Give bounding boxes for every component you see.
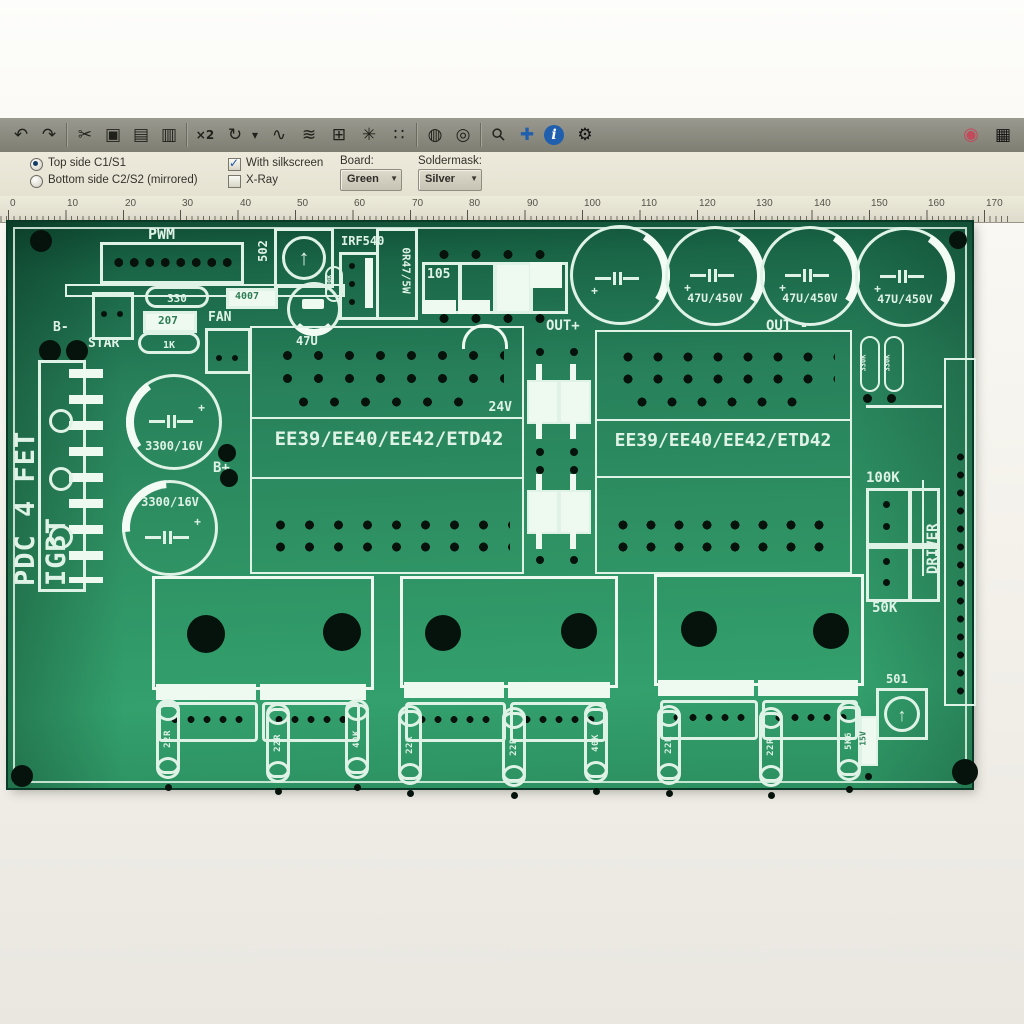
radio-top-side-label: Top side C1/S1 <box>48 157 126 169</box>
gate-resistor: 22R <box>266 708 290 778</box>
ruler-number: 140 <box>814 198 831 209</box>
soldermask-dropdown[interactable]: Silver ▼ <box>418 169 482 191</box>
b-minus-pad <box>39 340 61 362</box>
ruler-number: 80 <box>469 198 480 209</box>
silk-line <box>922 480 924 576</box>
ruler-number: 160 <box>928 198 945 209</box>
resistor-50k-body <box>866 546 912 602</box>
fan-connector <box>205 328 251 374</box>
diode-leg <box>570 364 576 381</box>
gate-resistor: 22R <box>398 710 422 780</box>
ruler-number: 170 <box>986 198 1003 209</box>
gate-resistor: 40K <box>345 704 369 774</box>
record-icon[interactable]: ◉ <box>958 122 984 148</box>
shunt-0r47: 0R47/5W <box>376 228 418 320</box>
cap-105-footprint <box>530 262 568 314</box>
cap-3300-16v: + 3300/16V <box>126 374 222 470</box>
b-minus-pad <box>66 340 88 362</box>
ruler-number: 30 <box>182 198 193 209</box>
ruler-number: 60 <box>354 198 365 209</box>
toolbar: ↶ ↷ ✂ ▣ ▤ ▥ ×2 ↻ ▾ ∿ ≋ ⊞ ✳ ∷ ◍ ◎ ⚲ ✚ i ⚙… <box>0 118 1024 153</box>
mounting-hole <box>30 230 52 252</box>
pwm-label: PWM <box>148 225 175 243</box>
rotate-dropdown-arrow[interactable]: ▾ <box>242 122 268 148</box>
b-minus-label: B- <box>53 320 69 335</box>
checkbox-x-ray-label: X-Ray <box>246 174 278 186</box>
heatsink-1 <box>152 576 374 690</box>
diode-pad <box>570 466 578 474</box>
paste-icon[interactable]: ▤ <box>128 122 154 148</box>
transformer-2: EE39/EE40/EE42/ETD42 <box>595 330 852 574</box>
checkbox-with-silkscreen[interactable] <box>228 158 241 171</box>
diode-pad <box>570 556 578 564</box>
gear-icon[interactable]: ⚙ <box>572 122 598 148</box>
cap-105: 105 <box>422 262 462 314</box>
rectifier-diode <box>559 380 591 424</box>
chevron-down-icon: ▼ <box>390 174 398 183</box>
heatsink-2-tab <box>508 682 610 698</box>
gate-resistor: 40K <box>584 708 608 778</box>
rectifier-diode <box>559 490 591 534</box>
diode-leg <box>536 364 542 381</box>
toolbar-separator <box>186 123 187 147</box>
ruler-number: 50 <box>297 198 308 209</box>
out-plus-label: OUT+ <box>546 318 580 334</box>
panel-icon[interactable]: ▦ <box>990 122 1016 148</box>
zoom-icon[interactable]: ⚲ <box>481 117 518 154</box>
mounting-hole <box>949 231 967 249</box>
diode-pad <box>536 448 544 456</box>
diode-207: 207 <box>143 311 197 333</box>
resistor-330k: 330K <box>884 336 904 392</box>
ruler-number: 20 <box>125 198 136 209</box>
gate-resistor: 5K6 <box>837 706 861 776</box>
cut-icon[interactable]: ✂ <box>72 122 98 148</box>
transformer-1: EE39/EE40/EE42/ETD42 24V <box>250 326 524 574</box>
star-connector <box>92 292 134 340</box>
trimmer-501-label: 501 <box>886 672 908 686</box>
diode-pad <box>536 466 544 474</box>
trimmer-502-label: 502 <box>256 240 270 262</box>
view-options-panel: Top side C1/S1 Bottom side C2/S2 (mirror… <box>0 152 1024 197</box>
footprint-icon[interactable]: ∷ <box>386 122 412 148</box>
pcb-canvas[interactable]: PWM B- STAR 330 207 1K 4007 FAN <box>8 222 972 788</box>
bulk-cap-47u450v: + 47U/450V <box>760 226 860 326</box>
resistor-330: 330 <box>145 286 209 308</box>
diode-leg <box>536 422 542 439</box>
bulk-cap-47u450v: + 47U/450V <box>855 227 955 327</box>
heatsink-3 <box>654 574 864 686</box>
diode-pad <box>536 348 544 356</box>
horizontal-ruler: 0 10 20 30 40 50 60 70 80 90 100 110 120… <box>0 196 1024 223</box>
chevron-down-icon: ▼ <box>470 174 478 183</box>
redo-icon[interactable]: ↷ <box>36 122 62 148</box>
ruler-number: 0 <box>10 198 16 209</box>
board-color-dropdown[interactable]: Green ▼ <box>340 169 402 191</box>
checkbox-x-ray[interactable] <box>228 175 241 188</box>
24v-label: 24V <box>489 400 512 415</box>
resistor-pad <box>887 394 896 403</box>
plane-icon[interactable]: ◍ <box>422 122 448 148</box>
settings-asterisk-icon[interactable]: ✳ <box>356 122 382 148</box>
transformer-core-label: EE39/EE40/EE42/ETD42 <box>603 430 843 451</box>
route-icon[interactable]: ⊞ <box>326 122 352 148</box>
photo-background: ↶ ↷ ✂ ▣ ▤ ▥ ×2 ↻ ▾ ∿ ≋ ⊞ ✳ ∷ ◍ ◎ ⚲ ✚ i ⚙… <box>0 0 1024 1024</box>
heatsink-2-tab <box>404 682 504 698</box>
igbt-connector <box>38 360 86 592</box>
silk-line <box>866 405 942 408</box>
diode-leg <box>536 474 542 491</box>
plane-alt-icon[interactable]: ◎ <box>450 122 476 148</box>
gate-resistor: 22R <box>502 712 526 782</box>
ruler-number: 130 <box>756 198 773 209</box>
ruler-number: 110 <box>641 198 657 209</box>
driver-connector <box>944 358 976 706</box>
ruler-number: 10 <box>67 198 78 209</box>
trimmer-501: ↑ <box>876 688 928 740</box>
pwm-connector <box>100 242 244 284</box>
resistor-1k: 1K <box>138 332 200 354</box>
transformer-core-label: EE39/EE40/EE42/ETD42 <box>264 428 514 450</box>
diode-leg <box>536 532 542 549</box>
delete-icon[interactable]: ▥ <box>156 122 182 148</box>
crosshair-icon[interactable]: ✚ <box>514 122 540 148</box>
bulk-cap-47u450v: + 47U/450V <box>665 226 765 326</box>
cap-105-pads <box>428 250 558 259</box>
cap-105-footprint <box>458 262 496 314</box>
soldermask-label: Soldermask: <box>418 155 482 167</box>
b-plus-pad <box>218 444 236 462</box>
diode-pad <box>536 556 544 564</box>
checkbox-with-silkscreen-label: With silkscreen <box>246 157 323 169</box>
diode-pad <box>570 348 578 356</box>
diode-leg <box>570 422 576 439</box>
copy-icon[interactable]: ▣ <box>100 122 126 148</box>
toolbar-separator <box>416 123 417 147</box>
resistor-pad <box>863 394 872 403</box>
board-color-label: Board: <box>340 155 374 167</box>
gate-resistor: 22R <box>657 710 681 780</box>
ruler-number: 90 <box>527 198 538 209</box>
ruler-number: 100 <box>584 198 601 209</box>
resistor-50k-label: 50K <box>872 600 897 616</box>
rectifier-diode <box>527 490 559 534</box>
resistor-330k: 330K <box>860 336 880 392</box>
heatsink-2 <box>400 576 618 688</box>
cap-105-pads <box>428 314 558 323</box>
star-label: STAR <box>88 336 119 351</box>
soldermask-value: Silver <box>425 173 455 185</box>
driver-label: DRIVER <box>925 484 941 574</box>
radio-top-side[interactable] <box>30 158 43 171</box>
heatsink-1-tab <box>260 684 366 700</box>
undo-icon[interactable]: ↶ <box>8 122 34 148</box>
info-icon[interactable]: i <box>544 125 564 145</box>
ruler-number: 120 <box>699 198 716 209</box>
mounting-hole <box>952 759 978 785</box>
ruler-number: 40 <box>240 198 251 209</box>
ruler-major-ticks <box>0 210 1012 222</box>
gate-resistor: 22R <box>759 712 783 782</box>
heatsink-1-tab <box>156 684 256 700</box>
ratsnest-icon[interactable]: ≋ <box>296 122 322 148</box>
diode-leg <box>570 532 576 549</box>
bulk-cap-47u450v: + <box>570 225 670 325</box>
board-color-value: Green <box>347 173 379 185</box>
ruler-number: 150 <box>871 198 888 209</box>
fan-label: FAN <box>208 310 231 325</box>
connection-icon[interactable]: ∿ <box>266 122 292 148</box>
heatsink-3-tab <box>758 680 858 696</box>
rectifier-diode <box>527 380 559 424</box>
resistor-100k-label: 100K <box>866 470 900 486</box>
ruler-number: 70 <box>412 198 423 209</box>
cap-3300-16v: 3300/16V + <box>122 480 218 576</box>
scale-x2-icon[interactable]: ×2 <box>192 122 218 148</box>
diode-pad <box>570 448 578 456</box>
toolbar-separator <box>66 123 67 147</box>
b-plus-pad <box>220 469 238 487</box>
radio-bottom-side[interactable] <box>30 175 43 188</box>
diode-leg <box>570 474 576 491</box>
cap-105-footprint <box>494 262 532 314</box>
radio-bottom-side-label: Bottom side C2/S2 (mirrored) <box>48 174 198 186</box>
heatsink-3-tab <box>658 680 754 696</box>
irf540-body <box>339 252 379 320</box>
gate-resistor: 22R <box>156 704 180 774</box>
diode-4007: 4007 <box>226 288 278 309</box>
mounting-hole <box>11 765 33 787</box>
resistor-100k-body <box>866 488 912 546</box>
